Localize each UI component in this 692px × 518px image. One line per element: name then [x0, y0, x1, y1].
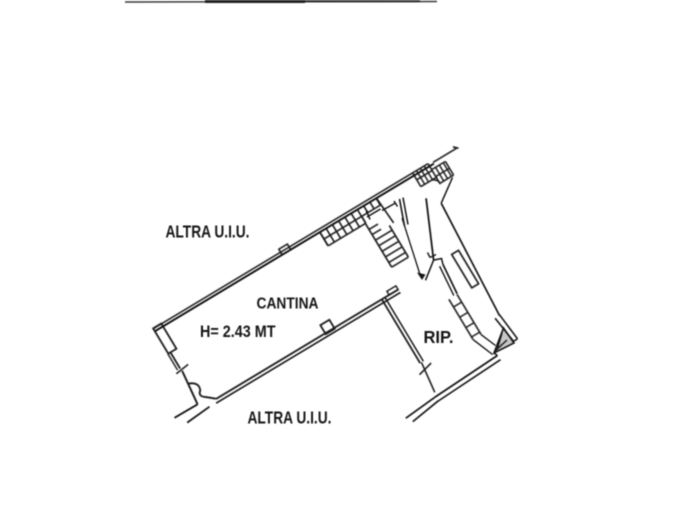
svg-text:ALTRA U.I.U.: ALTRA U.I.U.	[166, 221, 250, 241]
svg-text:RIP.: RIP.	[424, 327, 454, 347]
svg-text:CANTINA: CANTINA	[257, 296, 319, 313]
svg-text:H= 2.43 MT: H= 2.43 MT	[200, 323, 276, 341]
svg-text:ALTRA U.I.U.: ALTRA U.I.U.	[248, 407, 332, 427]
